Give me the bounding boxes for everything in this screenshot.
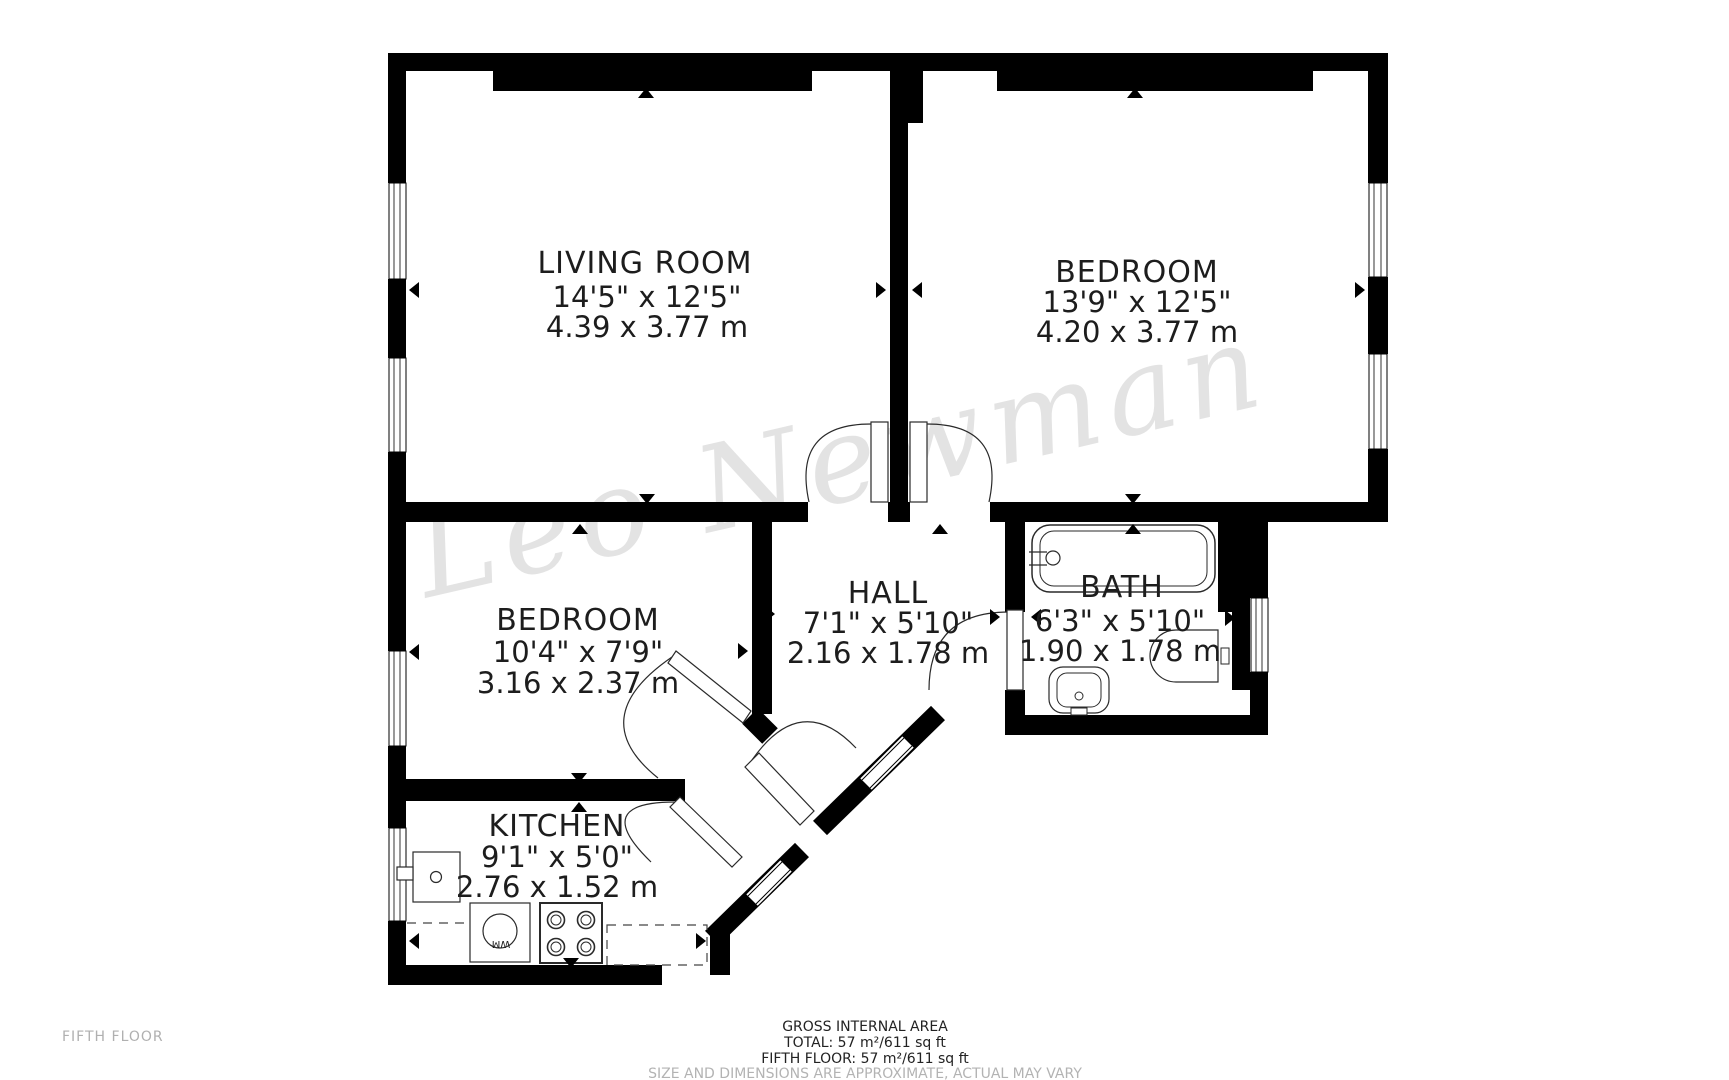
room-label-bedroom-1: BEDROOM 13'9" x 12'5" 4.20 x 3.77 m: [1036, 255, 1238, 349]
room-name: BEDROOM: [496, 603, 660, 638]
entry-sidelight-window: [862, 738, 912, 788]
room-dim-metric: 1.90 x 1.78 m: [1019, 634, 1221, 668]
gross-internal-area-title: GROSS INTERNAL AREA: [782, 1019, 948, 1035]
room-label-kitchen: KITCHEN 9'1" x 5'0" 2.76 x 1.52 m: [456, 809, 658, 904]
room-label-bedroom-2: BEDROOM 10'4" x 7'9" 3.16 x 2.37 m: [477, 603, 679, 700]
room-dim-imperial: 9'1" x 5'0": [481, 840, 633, 874]
washing-machine-label: WM: [492, 938, 511, 949]
room-dim-metric: 4.39 x 3.77 m: [546, 310, 748, 344]
room-name: KITCHEN: [489, 809, 626, 844]
bath-window: [1251, 598, 1268, 672]
room-dim-imperial: 10'4" x 7'9": [493, 635, 663, 669]
room-label-hall: HALL 7'1" x 5'10" 2.16 x 1.78 m: [787, 576, 989, 670]
washing-machine: [470, 903, 530, 962]
bedroom2-window: [389, 651, 406, 746]
room-dim-metric: 3.16 x 2.37 m: [477, 666, 679, 700]
living-room-window: [389, 183, 406, 279]
room-name: BATH: [1080, 570, 1164, 605]
room-name: LIVING ROOM: [537, 246, 752, 281]
disclaimer-text: SIZE AND DIMENSIONS ARE APPROXIMATE, ACT…: [648, 1066, 1082, 1080]
footer: GROSS INTERNAL AREA TOTAL: 57 m²/611 sq …: [648, 1019, 1082, 1080]
living-room-window: [389, 358, 406, 452]
floor-plan-svg: Leo Newman: [0, 0, 1729, 1080]
room-dim-metric: 2.16 x 1.78 m: [787, 636, 989, 670]
toilet: [1049, 667, 1109, 715]
room-dim-imperial: 6'3" x 5'10": [1035, 604, 1205, 638]
room-dim-metric: 4.20 x 3.77 m: [1036, 315, 1238, 349]
floor-plan-page: Leo Newman: [0, 0, 1729, 1080]
floor-area-value: FIFTH FLOOR: 57 m²/611 sq ft: [761, 1051, 969, 1067]
bedroom-window: [1369, 354, 1387, 449]
room-dim-metric: 2.76 x 1.52 m: [456, 870, 658, 904]
stove: [540, 903, 602, 963]
room-dim-imperial: 14'5" x 12'5": [553, 280, 742, 314]
room-dim-imperial: 13'9" x 12'5": [1043, 285, 1232, 319]
total-area-value: TOTAL: 57 m²/611 sq ft: [783, 1035, 946, 1051]
bedroom-window: [1369, 183, 1387, 277]
kitchen-door: [625, 797, 742, 867]
room-dim-imperial: 7'1" x 5'10": [803, 606, 973, 640]
room-label-living-room: LIVING ROOM 14'5" x 12'5" 4.39 x 3.77 m: [537, 246, 752, 344]
floor-label: FIFTH FLOOR: [62, 1029, 164, 1045]
